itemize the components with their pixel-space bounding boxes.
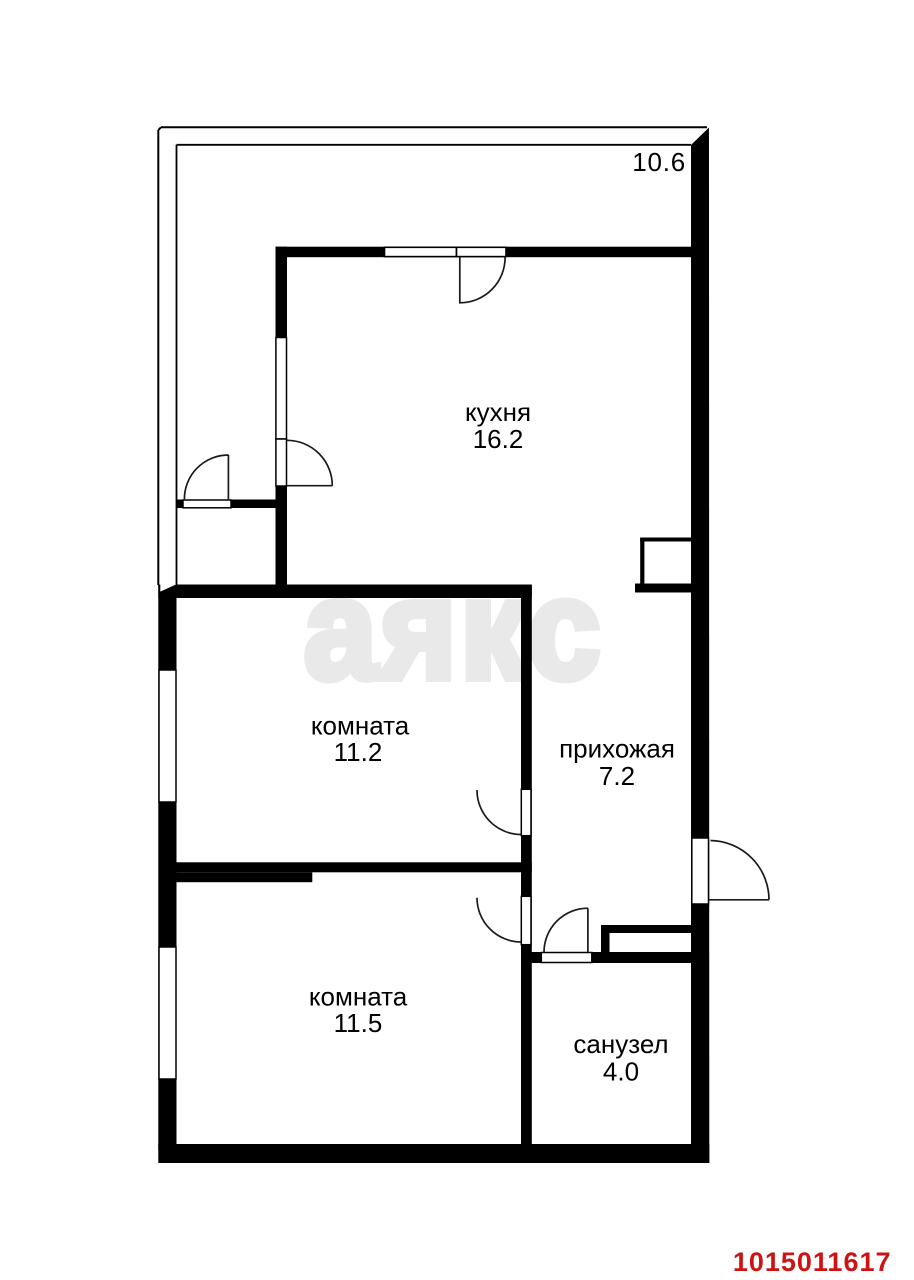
svg-text:4.0: 4.0 <box>603 1057 639 1087</box>
svg-text:11.2: 11.2 <box>334 737 383 767</box>
svg-text:1015011617: 1015011617 <box>733 1247 892 1277</box>
svg-text:16.2: 16.2 <box>473 424 524 454</box>
svg-text:10.6: 10.6 <box>632 147 686 177</box>
svg-text:комната: комната <box>311 711 410 741</box>
svg-text:7.2: 7.2 <box>599 761 635 791</box>
svg-text:комната: комната <box>309 981 408 1011</box>
svg-text:кухня: кухня <box>465 397 531 427</box>
svg-text:11.5: 11.5 <box>334 1008 383 1038</box>
svg-text:аякс: аякс <box>304 549 604 708</box>
svg-text:прихожая: прихожая <box>559 734 675 764</box>
svg-text:санузел: санузел <box>573 1029 668 1059</box>
